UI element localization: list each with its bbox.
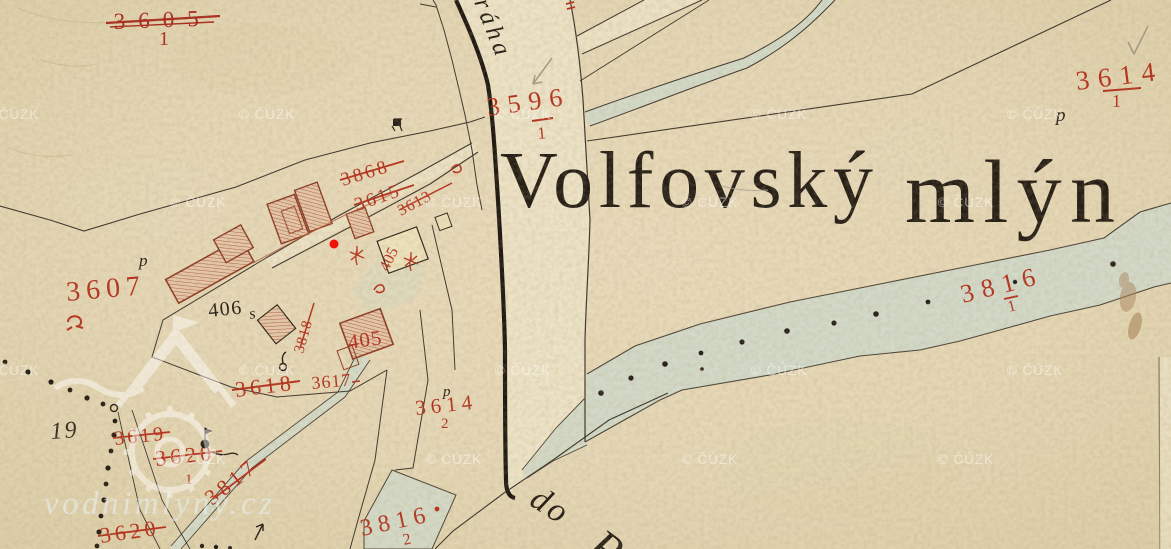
svg-text:© ČÚZK: © ČÚZK [751,363,807,378]
svg-text:© ČÚZK: © ČÚZK [426,452,482,467]
svg-text:© ČÚZK: © ČÚZK [495,363,551,378]
svg-text:© ČÚZK: © ČÚZK [938,452,994,467]
svg-text:vodnimlyny.cz: vodnimlyny.cz [44,486,276,522]
svg-text:© ČÚZK: © ČÚZK [426,195,482,210]
svg-text:© ČÚZK: © ČÚZK [239,107,295,122]
svg-text:© ČÚZK: © ČÚZK [0,107,39,122]
svg-text:© ČÚZK: © ČÚZK [495,107,551,122]
svg-text:© ČÚZK: © ČÚZK [170,452,226,467]
svg-text:© ČÚZK: © ČÚZK [682,452,738,467]
svg-text:© ČÚZK: © ČÚZK [239,363,295,378]
svg-text:© ČÚZK: © ČÚZK [170,195,226,210]
svg-text:© ČÚZK: © ČÚZK [1007,107,1063,122]
svg-text:© ČÚZK: © ČÚZK [938,195,994,210]
svg-text:© ČÚZK: © ČÚZK [751,107,807,122]
svg-text:© ČÚZK: © ČÚZK [1007,363,1063,378]
svg-text:© ČÚZK: © ČÚZK [682,195,738,210]
svg-text:© ČÚZK: © ČÚZK [0,363,39,378]
